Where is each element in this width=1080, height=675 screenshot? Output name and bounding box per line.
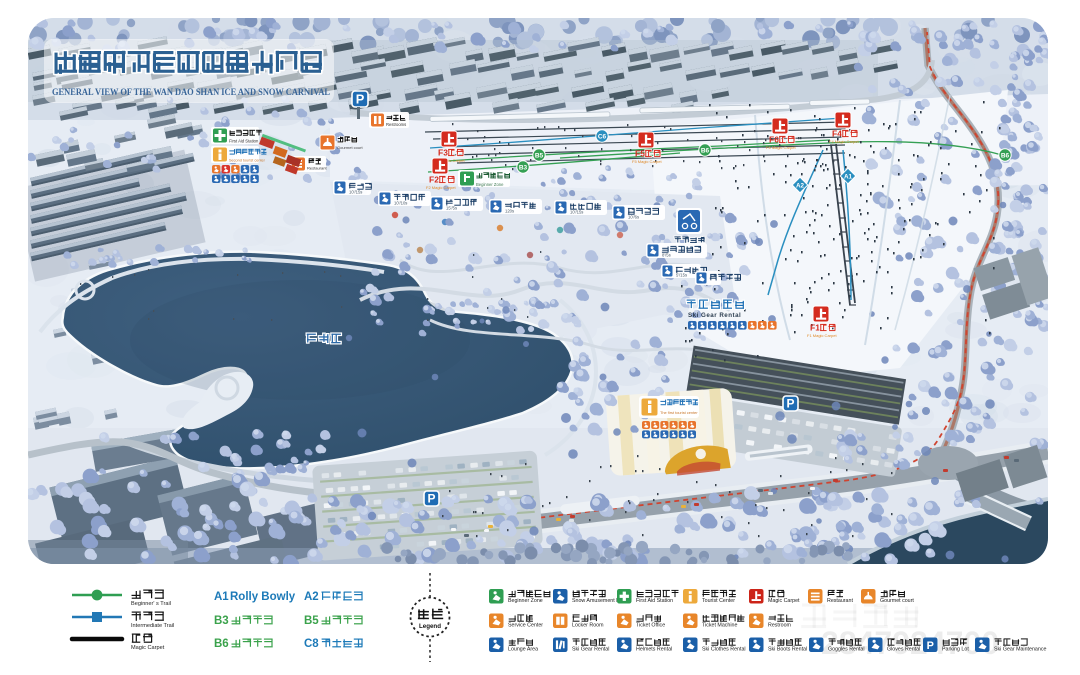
svg-text:15'/5s: 15'/5s (446, 206, 457, 211)
svg-text:Ski Gear Rental: Ski Gear Rental (572, 647, 609, 653)
svg-text:Ticket Machine: Ticket Machine (702, 623, 737, 629)
svg-text:Ticket Office: Ticket Office (636, 623, 665, 629)
svg-text:120s: 120s (505, 209, 514, 214)
svg-text:10'/10s: 10'/10s (394, 201, 407, 206)
svg-text:Restroom: Restroom (768, 623, 792, 629)
svg-text:F6 Magic Carpet: F6 Magic Carpet (766, 145, 796, 150)
svg-text:F6: F6 (769, 135, 779, 145)
svg-text:Lounge Area: Lounge Area (508, 647, 538, 653)
svg-text:Parking Lot: Parking Lot (942, 647, 969, 653)
svg-text:Restrooms: Restrooms (386, 122, 406, 127)
svg-text:B3: B3 (519, 164, 528, 171)
svg-text:F1: F1 (810, 323, 820, 333)
svg-text:C8: C8 (304, 638, 319, 650)
svg-text:Ski Boots Rental: Ski Boots Rental (768, 647, 807, 653)
svg-text:F3: F3 (438, 148, 448, 158)
svg-text:P: P (927, 640, 934, 652)
svg-text:B5: B5 (304, 615, 319, 627)
svg-text:B6: B6 (701, 147, 710, 154)
svg-text:F1 Magic Carpet: F1 Magic Carpet (807, 333, 837, 338)
svg-text:Gourmet court: Gourmet court (337, 145, 363, 150)
svg-text:Second tourist center: Second tourist center (229, 159, 266, 163)
svg-text:10'/15s: 10'/15s (349, 190, 362, 195)
svg-text:Legend: Legend (419, 623, 441, 630)
svg-text:Intermediate Trail: Intermediate Trail (131, 623, 174, 629)
svg-text:The first tourist center: The first tourist center (660, 410, 698, 415)
svg-text:Beginner' s Trail: Beginner' s Trail (131, 601, 171, 607)
svg-text:A1: A1 (844, 173, 853, 180)
svg-text:8'/5s: 8'/5s (662, 253, 671, 258)
svg-text:10'/6s: 10'/6s (628, 215, 639, 220)
svg-text:A1: A1 (214, 591, 229, 603)
svg-text:P: P (427, 492, 435, 506)
svg-text:B5: B5 (535, 152, 544, 159)
svg-text:Service Center: Service Center (508, 623, 543, 629)
svg-text:F5: F5 (635, 149, 645, 159)
svg-text:B6: B6 (1001, 152, 1010, 159)
svg-text:F5 Magic Carpet: F5 Magic Carpet (632, 159, 662, 164)
svg-text:Ski Clothes Rental: Ski Clothes Rental (702, 647, 746, 653)
svg-text:C6: C6 (598, 133, 607, 140)
svg-text:Ski Gear Maintenance: Ski Gear Maintenance (994, 647, 1046, 653)
svg-text:Magic Carpet: Magic Carpet (768, 598, 800, 604)
svg-text:Rolly Bowly: Rolly Bowly (230, 591, 296, 603)
svg-text:A2: A2 (304, 591, 319, 603)
svg-text:Goggles Rental: Goggles Rental (828, 647, 865, 653)
svg-text:F2: F2 (429, 175, 439, 185)
svg-text:F4: F4 (832, 129, 842, 139)
svg-text:A2: A2 (796, 182, 805, 189)
svg-text:Restaurant: Restaurant (307, 166, 327, 171)
svg-text:5'/15s: 5'/15s (676, 273, 687, 278)
svg-text:B3: B3 (214, 615, 229, 627)
svg-text:Beginner Zone: Beginner Zone (476, 182, 504, 187)
svg-text:First Aid Station: First Aid Station (636, 598, 673, 604)
svg-text:P: P (786, 397, 794, 411)
svg-text:B6: B6 (214, 638, 229, 650)
svg-text:Locker Room: Locker Room (572, 623, 604, 629)
svg-text:Magic Carpet: Magic Carpet (131, 645, 165, 651)
svg-text:P: P (356, 92, 365, 107)
svg-text:Restaurant: Restaurant (827, 598, 853, 604)
svg-text:F2 Magic Carpet: F2 Magic Carpet (426, 185, 456, 190)
svg-text:10'/15s: 10'/15s (570, 210, 583, 215)
svg-text:Gloves Rental: Gloves Rental (887, 647, 920, 653)
svg-text:Helmets Rental: Helmets Rental (636, 647, 672, 653)
svg-text:Beginner Zone: Beginner Zone (508, 598, 543, 604)
svg-text:Gourmet court: Gourmet court (880, 598, 914, 604)
svg-text:GENERAL VIEW OF THE WAN DAO SH: GENERAL VIEW OF THE WAN DAO SHAN ICE AND… (52, 88, 330, 98)
svg-text:Tourist Center: Tourist Center (702, 598, 735, 604)
svg-text:First Aid Station: First Aid Station (229, 139, 259, 144)
svg-text:Ski Gear Rental: Ski Gear Rental (688, 312, 741, 319)
svg-text:F4 Magic Carpet: F4 Magic Carpet (829, 139, 859, 144)
